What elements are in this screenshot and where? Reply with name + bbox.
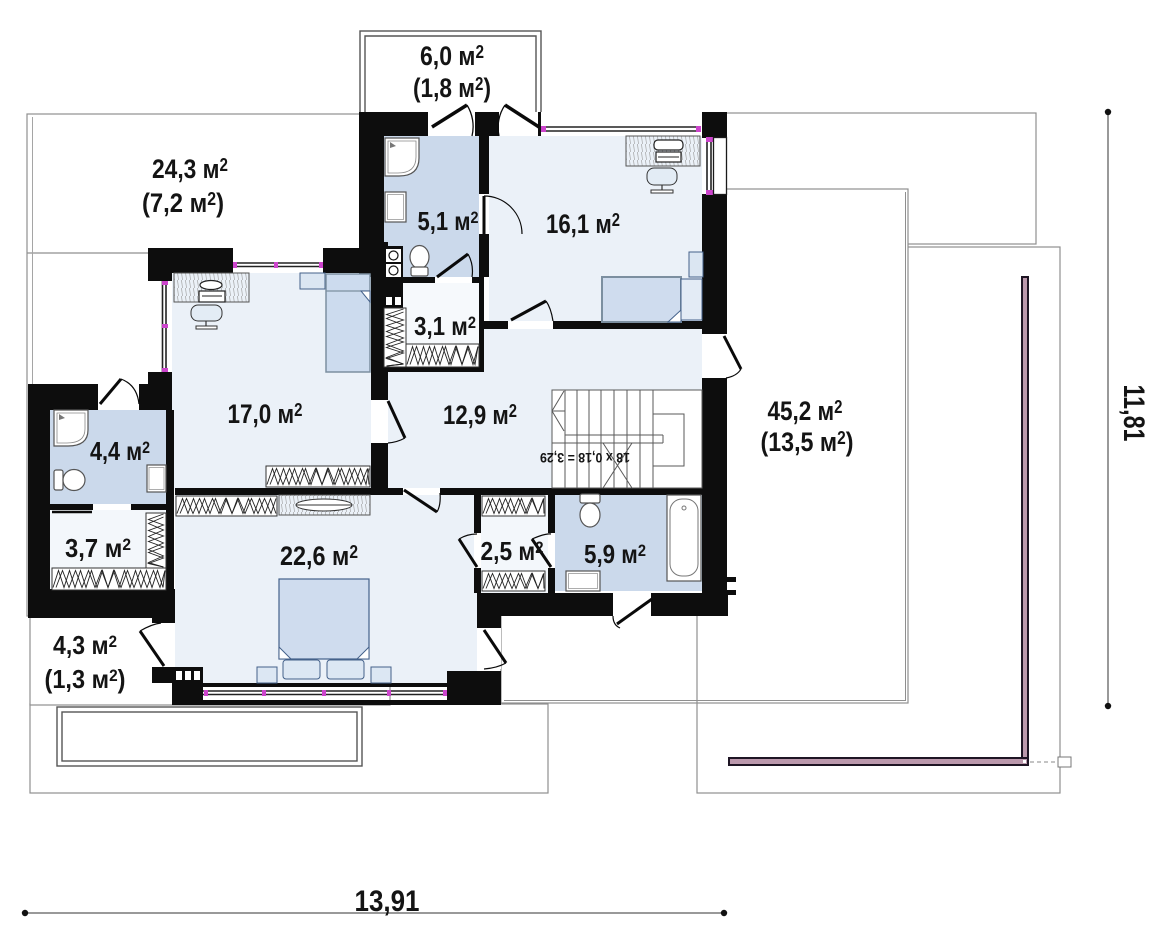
svg-text:22,6 м2: 22,6 м2: [280, 541, 358, 571]
svg-text:3,7 м2: 3,7 м2: [65, 533, 131, 563]
svg-text:11,81: 11,81: [1117, 385, 1150, 442]
svg-text:18 x 0,18 = 3,29: 18 x 0,18 = 3,29: [540, 450, 630, 465]
svg-text:5,1 м2: 5,1 м2: [418, 206, 479, 236]
svg-text:45,2 м2: 45,2 м2: [768, 396, 843, 426]
svg-text:24,3 м2: 24,3 м2: [152, 154, 228, 184]
svg-text:5,9 м2: 5,9 м2: [584, 539, 646, 569]
svg-text:16,1 м2: 16,1 м2: [546, 209, 620, 239]
svg-text:3,1 м2: 3,1 м2: [414, 311, 476, 341]
svg-text:12,9 м2: 12,9 м2: [443, 400, 517, 430]
svg-text:2,5 м2: 2,5 м2: [481, 536, 544, 566]
svg-text:6,0 м2: 6,0 м2: [420, 41, 484, 71]
svg-text:4,3 м2: 4,3 м2: [53, 630, 117, 660]
svg-text:4,4 м2: 4,4 м2: [90, 436, 150, 466]
svg-text:17,0 м2: 17,0 м2: [228, 399, 303, 429]
svg-text:13,91: 13,91: [355, 885, 420, 918]
